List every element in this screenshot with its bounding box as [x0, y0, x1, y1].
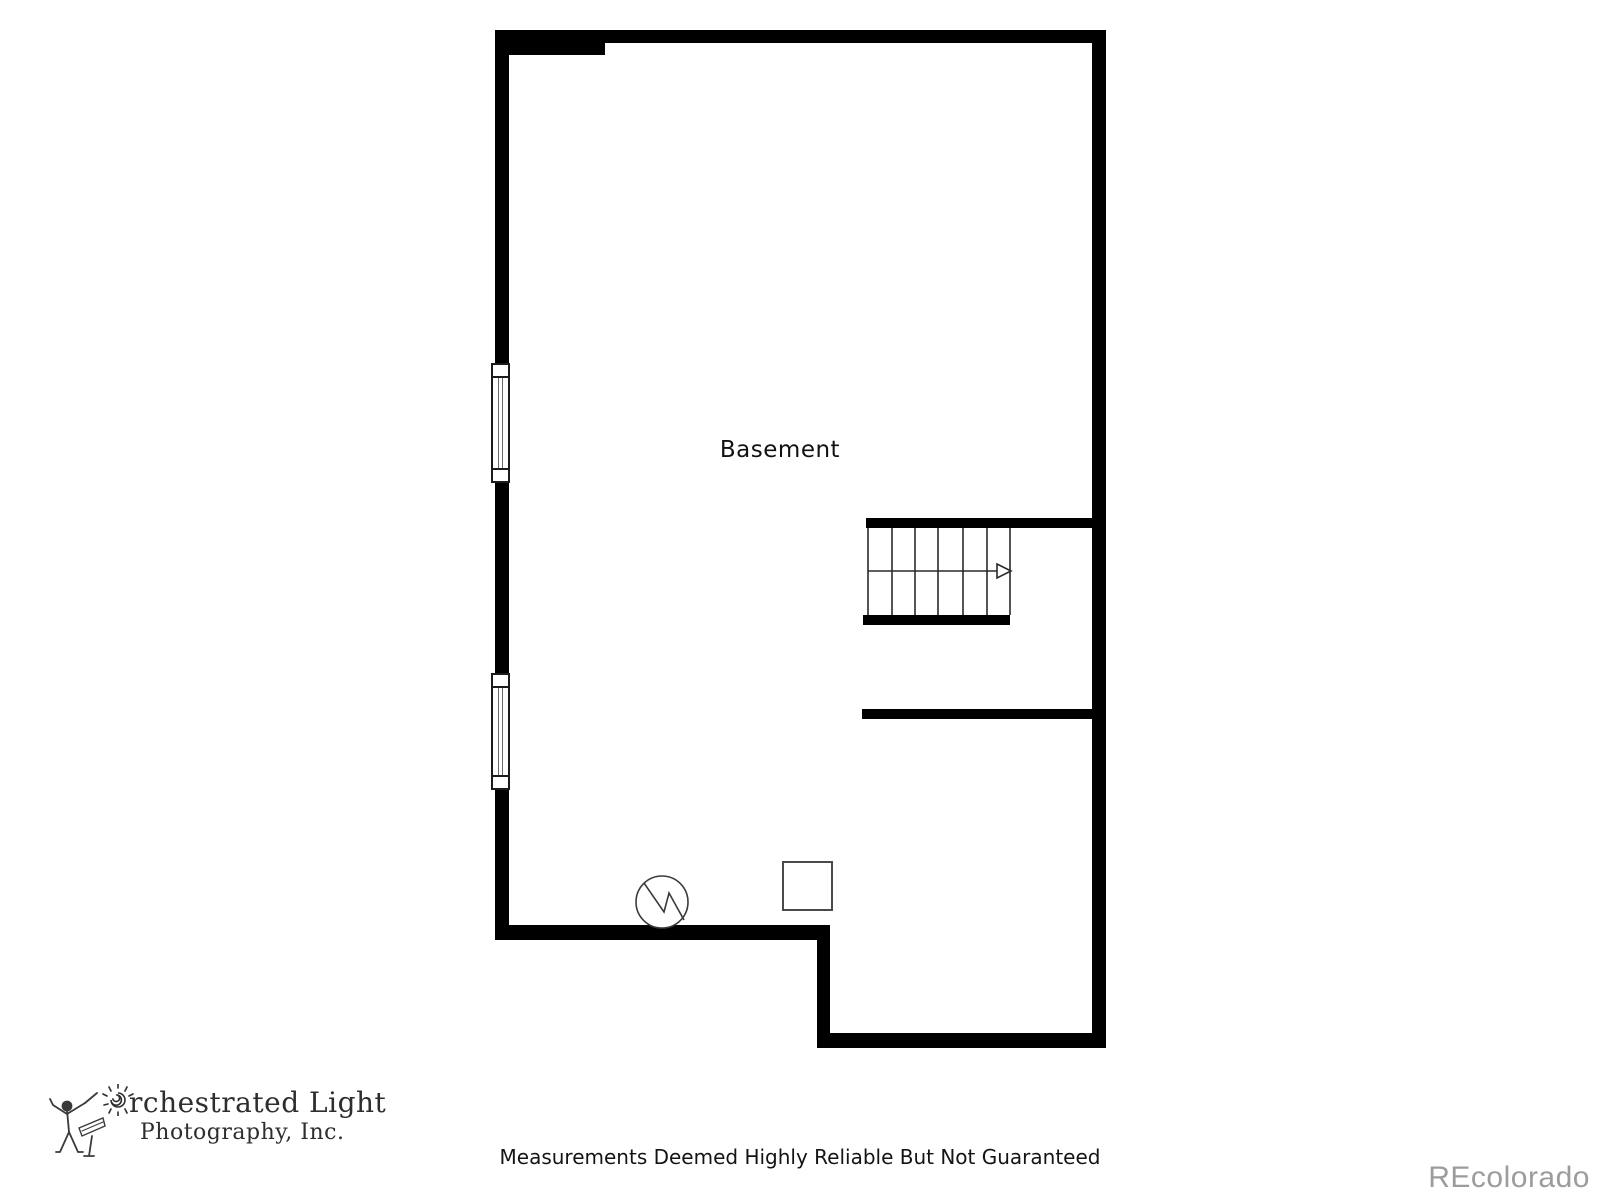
- window-pane: [493, 688, 508, 775]
- room-label: Basement: [660, 437, 900, 463]
- window-frame-cap: [493, 365, 508, 378]
- conductor-figure-icon: [45, 1090, 107, 1162]
- wall-left-upper: [495, 30, 509, 363]
- recolorado-watermark: REcolorado: [1428, 1161, 1590, 1195]
- window-frame-cap: [493, 468, 508, 481]
- photography-logo: rchestrated Light Photography, Inc.: [40, 1040, 350, 1180]
- wall-left-middle: [495, 483, 509, 673]
- logo-name-text: rchestrated Light: [129, 1086, 386, 1119]
- wall-top-left-notch: [495, 42, 605, 55]
- window-frame-cap: [493, 775, 508, 788]
- post-symbol: [782, 861, 833, 911]
- stair-direction-arrow-icon: [868, 564, 1011, 578]
- logo-subtitle-text: Photography, Inc.: [140, 1120, 344, 1145]
- staircase: [866, 528, 1016, 615]
- electrical-symbol-icon: [624, 864, 700, 940]
- wall-left-lower: [495, 790, 509, 940]
- wall-bottom-right-section: [817, 1033, 1106, 1048]
- wall-stair-top: [866, 518, 1092, 528]
- wall-right: [1092, 30, 1106, 1048]
- floor-plan-page: Basement Measurements Deemed Highly Reli…: [0, 0, 1600, 1200]
- window-lower: [491, 673, 510, 790]
- wall-jog-vertical: [817, 925, 830, 1048]
- wall-interior-lower: [862, 709, 1092, 719]
- window-upper: [491, 363, 510, 483]
- window-frame-cap: [493, 675, 508, 688]
- wall-stair-bottom: [863, 615, 1010, 625]
- window-pane: [493, 378, 508, 468]
